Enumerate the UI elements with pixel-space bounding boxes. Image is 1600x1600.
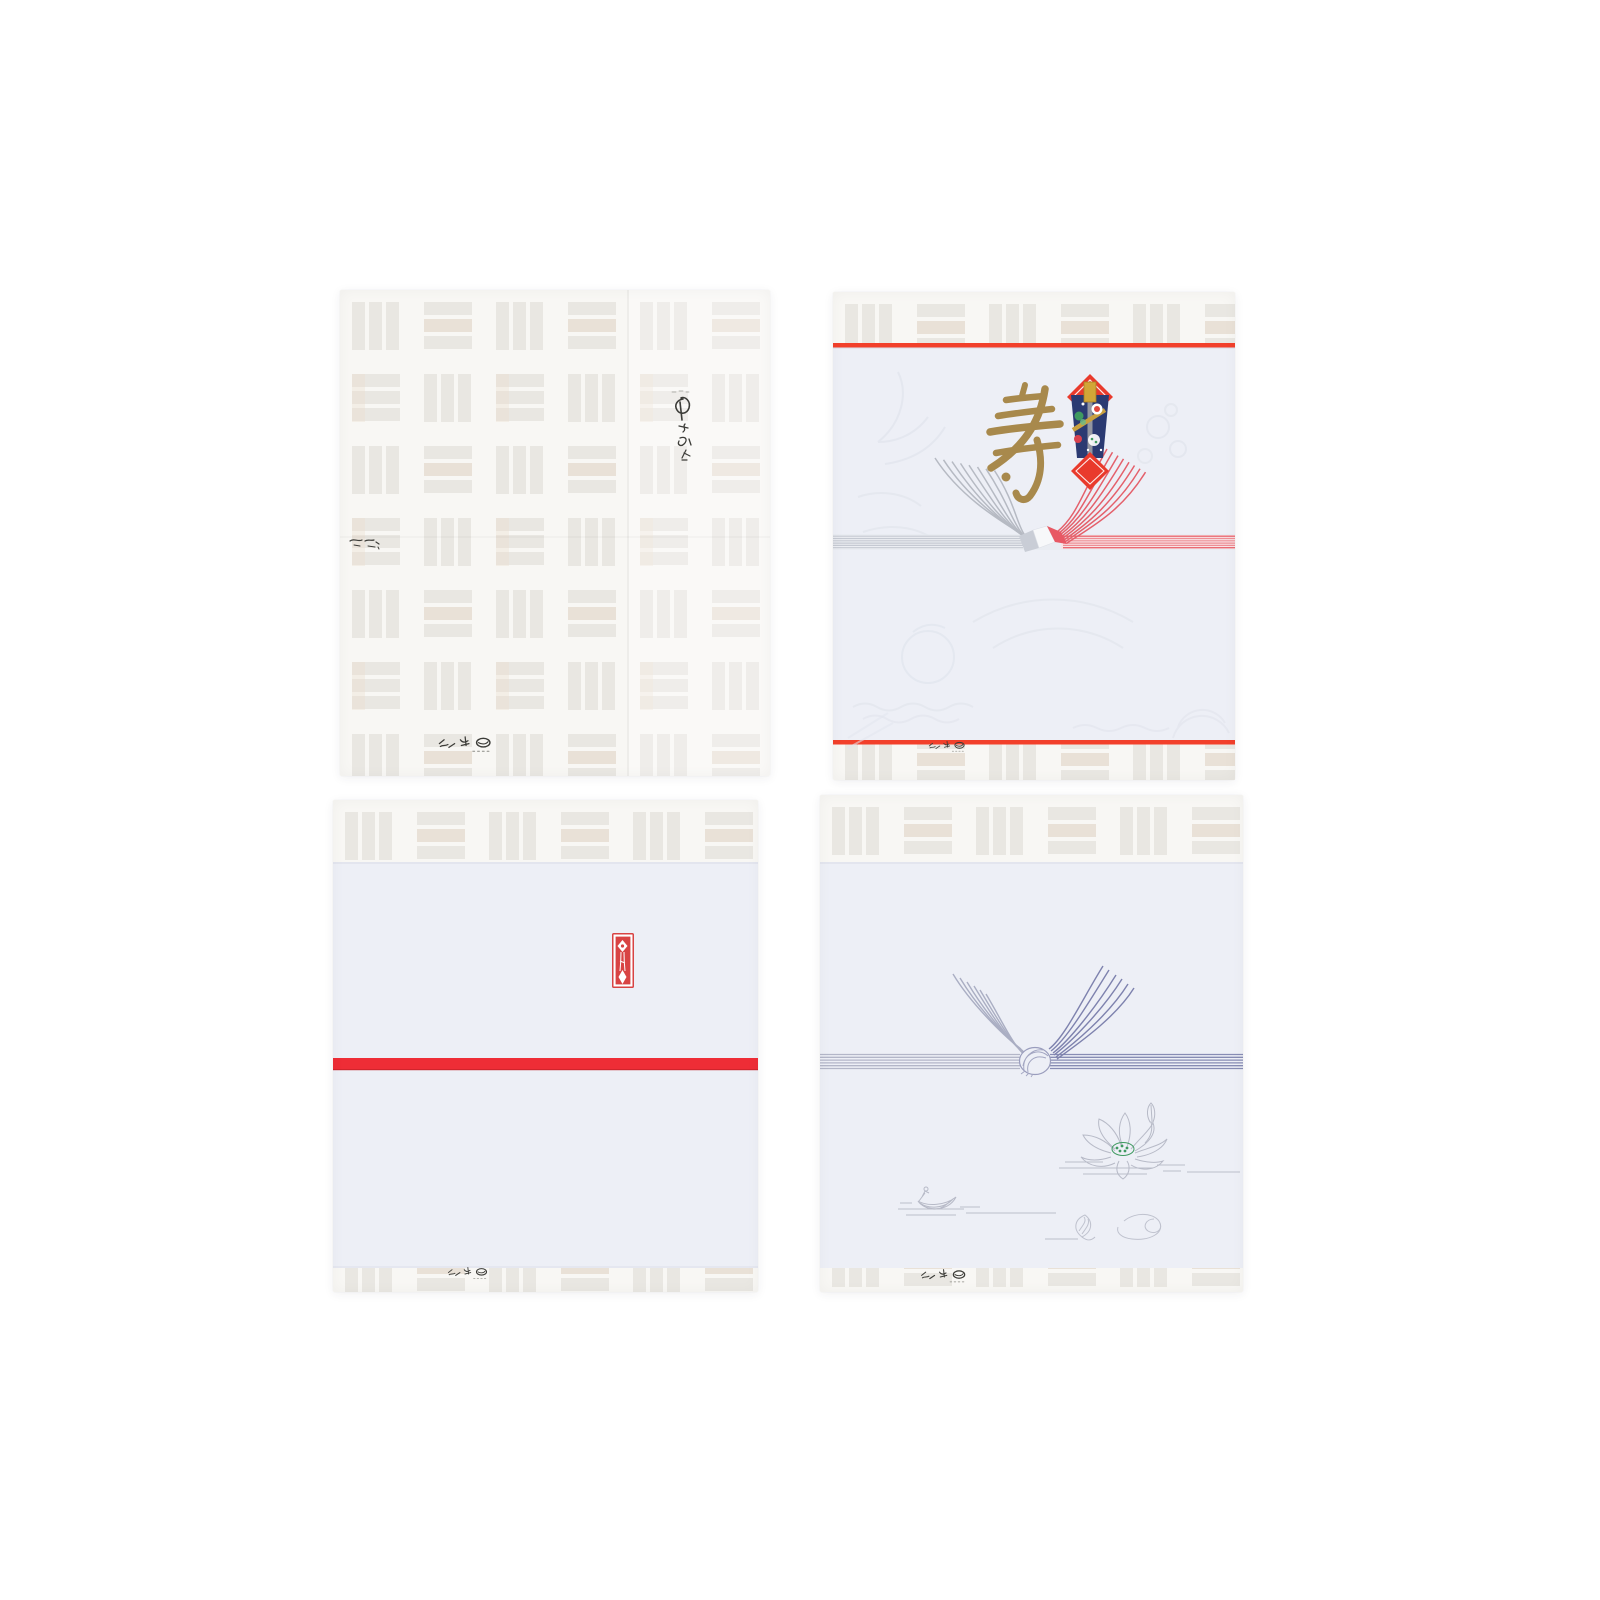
red-band-edge <box>333 1069 758 1070</box>
mizuhiki-band-red <box>1061 535 1235 549</box>
package-buddhist-mizuhiki <box>820 795 1243 1292</box>
mizuhiki-band-silver <box>833 535 1025 549</box>
red-band <box>333 1058 758 1070</box>
sheet-edge-shadow <box>833 347 1235 349</box>
package-red-band-noshi <box>333 800 758 1292</box>
paper-fold-line <box>627 290 629 776</box>
sheet-edge-shadow <box>333 862 758 864</box>
paper-flap-highlight <box>629 290 770 776</box>
package-celebration-noshi: 寿 <box>833 292 1235 780</box>
red-border-line-top <box>833 343 1235 348</box>
paper-crease <box>340 536 770 538</box>
sheet-bottom-shadow <box>333 1266 758 1268</box>
red-border-line-bottom <box>833 740 1235 745</box>
noshi-seal-stamp <box>613 934 634 988</box>
package-plain-weave <box>340 290 770 776</box>
photo-stage: 寿 <box>0 0 1600 1600</box>
sheet-edge-shadow <box>820 862 1243 864</box>
